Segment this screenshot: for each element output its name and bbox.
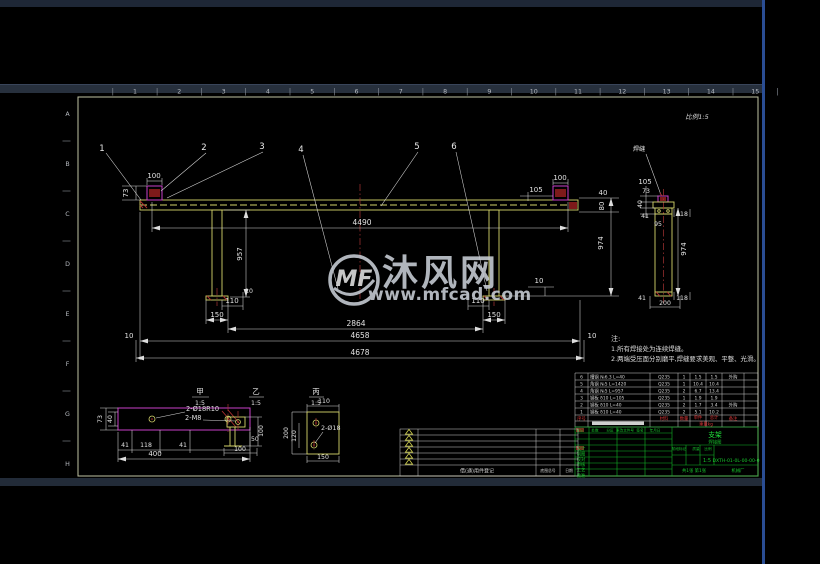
revision-triangle-icon <box>405 459 412 464</box>
dim-4678: 4678 <box>350 348 369 357</box>
bom-cell-total: 1.5 <box>711 374 718 380</box>
balloon-6: 6 <box>451 142 456 152</box>
revision-triangle-icon <box>405 435 412 440</box>
front-dimensions: 73 100 4490 957 105 100 40 <box>122 172 619 362</box>
yi-dim-100v: 100 <box>258 425 265 437</box>
bom-cell-qty: 1 <box>683 374 686 380</box>
zone-number: 3 <box>222 89 226 96</box>
bing-dim-200: 200 <box>283 427 290 439</box>
cad-viewer-screen: 123456789101112131415 ABCDEFGH <box>0 0 820 564</box>
section-view: 比例1:5 焊缝 105 73 40 41 95 <box>633 113 709 309</box>
tb-stage-label: 阶段标记 <box>672 446 687 451</box>
dim-100-right: 100 <box>553 174 566 182</box>
bom-cell-mat: Q235 <box>658 374 670 380</box>
bing-dim-120: 120 <box>291 430 298 442</box>
yi-dim-100h: 100 <box>234 446 246 453</box>
bom-cell-name: 钢板 δ10 L=40 <box>590 408 622 415</box>
zone-letter: D <box>65 261 70 268</box>
bom-cell-unit: 1.9 <box>695 395 702 401</box>
balloon-2: 2 <box>201 143 206 153</box>
zone-letter: B <box>65 161 69 168</box>
sec-dim-41-top: 41 <box>641 213 649 220</box>
bom-cell-qty: 2 <box>683 409 686 415</box>
bom-cell-name: 角钢 №5 L=1420 <box>590 380 626 387</box>
notes-title: 注: <box>611 334 620 343</box>
borrow-caption: 借(通)用件登记 <box>460 468 494 475</box>
dim-957: 957 <box>236 247 244 260</box>
bom-h-unit: 单件 <box>694 414 703 421</box>
bom-cell-no: 6 <box>580 374 583 380</box>
jia-holes-note: 2-Ø18R10 <box>186 405 219 413</box>
dim-110-right: 110 <box>471 297 484 305</box>
jia-dim-400: 400 <box>148 450 161 458</box>
jia-dim-73: 73 <box>97 415 104 423</box>
zone-letter: A <box>65 111 70 118</box>
tb-outline <box>575 427 758 476</box>
zone-number: 14 <box>707 89 715 96</box>
dim-105: 105 <box>529 186 542 194</box>
section-view-label: 比例1:5 <box>685 113 708 121</box>
bom-cell-mat: Q235 <box>658 402 670 408</box>
revision-triangle-icon <box>405 441 412 446</box>
bom-cell-total: 10.4 <box>709 381 719 387</box>
sec-dim-200: 200 <box>659 300 671 307</box>
zone-number: 12 <box>618 89 626 96</box>
zone-letter: G <box>65 411 70 418</box>
cad-canvas: 123456789101112131415 ABCDEFGH <box>0 0 820 564</box>
dim-80: 80 <box>598 202 606 211</box>
detail-jia-name: 甲 <box>196 387 204 396</box>
bom-cell-name: 槽钢 №6.3 L=40 <box>590 373 625 380</box>
tb-rev-label: 标记 <box>576 428 584 433</box>
revision-triangle-icon <box>405 447 412 452</box>
tb-drawing-number: DXTH-01-0L-00-00-0 <box>712 458 759 464</box>
zone-letter: E <box>66 311 70 318</box>
bom-cell-total: 1.9 <box>711 395 718 401</box>
bom-cell-total: 10.2 <box>709 409 719 415</box>
dim-974-front: 974 <box>597 236 605 250</box>
zone-number: 7 <box>399 89 403 96</box>
sec-dim-41-bot: 41 <box>638 295 646 302</box>
bom-h-no: 序号 <box>577 415 586 422</box>
borrow-h1: 底图总号 <box>540 468 555 473</box>
bom-h-mat: 材料 <box>660 415 669 422</box>
tb-rev-label: 分区 <box>606 428 614 433</box>
bom-cell-mat: Q235 <box>658 388 670 394</box>
zone-number: 5 <box>310 89 314 96</box>
tb-company: 机械厂 <box>732 467 746 474</box>
bom-cell-rem: 外购 <box>729 401 738 408</box>
bom-cell-no: 2 <box>580 402 583 408</box>
balloon-1: 1 <box>99 144 104 154</box>
zone-number: 13 <box>663 89 671 96</box>
balloon-5: 5 <box>414 142 419 152</box>
sheet-frame: 123456789101112131415 ABCDEFGH <box>63 88 778 476</box>
bom-cell-unit: 1.5 <box>695 374 702 380</box>
tb-sheet-info: 共1张 第1张 <box>682 467 707 474</box>
note-line-2: 2.两端受压面分别磨平,焊缝要求美观、平整、光滑。 <box>611 354 760 363</box>
bom-cell-rem: 外购 <box>729 373 738 380</box>
jia-dim-41r: 41 <box>179 442 187 449</box>
bom-cell-qty: 1 <box>683 395 686 401</box>
bom-h-qty: 数量 <box>680 415 689 422</box>
dim-10-left-leg: 10 <box>245 288 253 295</box>
title-block: 设计制图校对审核工艺批准 标记处数分区更改文件号签名年月日 阶段标记 质量 比例… <box>575 427 760 479</box>
bom-cell-total: 3.4 <box>711 402 718 408</box>
tb-rev-label: 处数 <box>591 428 599 433</box>
zone-letter: C <box>65 211 70 218</box>
bom-cell-name: 角钢 №5 L=957 <box>590 387 624 394</box>
zone-number: 15 <box>751 89 759 96</box>
balloon-4: 4 <box>298 145 303 155</box>
borrow-h2: 日期 <box>565 468 573 473</box>
tb-mass-label: 质量 <box>692 446 700 451</box>
sec-dim-974: 974 <box>680 242 688 256</box>
zone-number: 9 <box>487 89 491 96</box>
front-view <box>140 184 578 306</box>
bom-cell-unit: 10.4 <box>693 381 703 387</box>
bom-cell-unit: 1.7 <box>695 402 702 408</box>
title-block-grid <box>575 427 758 476</box>
tb-scale-value: 1:5 <box>703 458 711 464</box>
tb-rev-label: 年月日 <box>650 428 661 433</box>
dim-100-left: 100 <box>147 172 160 180</box>
dim-2864: 2864 <box>346 319 365 328</box>
bing-dim-110: 110 <box>318 398 330 405</box>
zone-number: 2 <box>177 89 181 96</box>
zone-number: 10 <box>530 89 538 96</box>
yi-dim-50: 50 <box>251 436 259 443</box>
tb-part-subname: 焊接图 <box>709 439 722 446</box>
bom-cell-total: 13.4 <box>709 388 719 394</box>
bom-cell-qty: 2 <box>683 402 686 408</box>
dim-10-end-left: 10 <box>125 332 134 340</box>
part-balloons: 1 2 3 4 5 6 <box>99 142 487 291</box>
bom-cell-name: 钢板 δ10 L=105 <box>590 394 625 401</box>
zone-letter: H <box>65 461 70 468</box>
bom-cell-unit: 5.1 <box>695 409 702 415</box>
sec-dim-95: 95 <box>654 221 662 228</box>
dim-40: 40 <box>599 189 608 197</box>
bom-cell-qty: 2 <box>683 388 686 394</box>
bom-cell-unit: 6.7 <box>695 388 702 394</box>
bom-cell-name: 钢板 δ10 L=40 <box>590 401 622 408</box>
detail-yi-scale: 1:5 <box>251 400 261 407</box>
sec-dim-105: 105 <box>638 178 651 186</box>
dim-150-left: 150 <box>210 311 223 319</box>
borrow-table: 借(通)用件登记 底图总号 日期 <box>400 429 578 476</box>
dim-110-left: 110 <box>225 297 238 305</box>
bing-holes-note: 2-Ø18 <box>321 424 341 432</box>
dim-73: 73 <box>122 189 130 198</box>
revision-triangle-icon <box>405 429 412 434</box>
bom-cell-mat: Q235 <box>658 381 670 387</box>
jia-tap-note: 2-M8 <box>185 414 201 422</box>
bom-cell-no: 1 <box>580 409 583 415</box>
dim-10-end-right: 10 <box>588 332 597 340</box>
jia-dim-40: 40 <box>107 415 114 423</box>
sec-dim-40: 40 <box>637 200 644 208</box>
bom-cell-no: 3 <box>580 395 583 401</box>
zone-number: 4 <box>266 89 270 96</box>
tb-rev-label: 更改文件号 <box>616 428 634 433</box>
detail-bing: 丙 1:5 110 2-Ø18 200 120 150 <box>283 387 341 463</box>
zone-number: 11 <box>574 89 582 96</box>
zone-letter: F <box>66 361 70 368</box>
dim-4490: 4490 <box>352 218 371 227</box>
dim-4658: 4658 <box>350 331 369 340</box>
bom-cell-no: 5 <box>580 381 583 387</box>
zone-ruler-top: 123456789101112131415 <box>113 88 778 96</box>
bom-rows: 6槽钢 №6.3 L=40Q23511.51.5外购5角钢 №5 L=1420Q… <box>580 373 738 415</box>
bom-h-weight: 重量kg <box>699 421 713 428</box>
jia-dim-41l: 41 <box>121 442 129 449</box>
dim-10-float: 10 <box>535 277 544 285</box>
weld-label: 焊缝 <box>633 145 645 153</box>
bom-cell-qty: 1 <box>683 381 686 387</box>
tb-part-name: 支架 <box>708 430 722 439</box>
dim-150-right: 150 <box>487 311 500 319</box>
notes: 注: 1.所有焊接处为连续焊缝。 2.两端受压面分别磨平,焊缝要求美观、平整、光… <box>611 334 760 363</box>
bom-cell-no: 4 <box>580 388 583 394</box>
bom-cell-mat: Q235 <box>658 409 670 415</box>
bom-cell-mat: Q235 <box>658 395 670 401</box>
note-line-1: 1.所有焊接处为连续焊缝。 <box>611 344 687 353</box>
revision-triangle-icon <box>405 453 412 458</box>
bom-header-highlight <box>592 422 644 426</box>
detail-bing-name: 丙 <box>312 387 320 396</box>
detail-yi-name: 乙 <box>252 387 260 396</box>
zone-number: 8 <box>443 89 447 96</box>
jia-dim-118: 118 <box>140 442 152 449</box>
tb-scale-label: 比例 <box>704 446 712 451</box>
tb-rev-label: 签名 <box>636 428 644 433</box>
balloon-3: 3 <box>259 142 264 152</box>
bom-table: 6槽钢 №6.3 L=40Q23511.51.5外购5角钢 №5 L=1420Q… <box>575 373 758 428</box>
sec-dim-73: 73 <box>642 188 650 195</box>
bing-dim-150: 150 <box>317 454 329 461</box>
bom-h-rem: 备注 <box>729 415 738 422</box>
zone-number: 1 <box>133 89 137 96</box>
sec-dim-118-bot: 118 <box>676 295 688 302</box>
zone-ruler-left: ABCDEFGH <box>63 111 71 468</box>
zone-number: 6 <box>354 89 358 96</box>
bom-h-total: 总计 <box>710 414 719 421</box>
